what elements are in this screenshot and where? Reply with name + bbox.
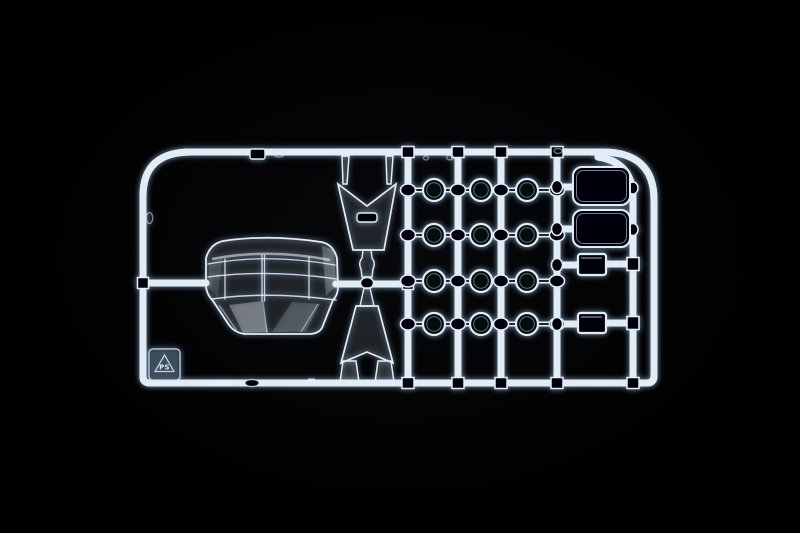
windshield-outline bbox=[206, 238, 338, 334]
material-label: PS bbox=[159, 364, 170, 372]
sprue-stem bbox=[386, 156, 393, 184]
upper-glass-panel-part bbox=[338, 156, 396, 289]
runner-bulge bbox=[451, 318, 466, 330]
sprue-stem bbox=[342, 156, 349, 184]
windshield-part bbox=[206, 238, 338, 334]
lens-grid bbox=[401, 179, 565, 335]
runner-junction-block bbox=[627, 258, 639, 271]
runner-bulge bbox=[401, 184, 416, 196]
rounded-window-pane-part bbox=[573, 167, 630, 205]
runner-bulge bbox=[361, 278, 374, 289]
runner-bulge bbox=[451, 184, 466, 196]
sprue-foot bbox=[340, 361, 359, 382]
runner-bulge bbox=[552, 259, 563, 272]
rounded-window-pane-part bbox=[573, 210, 630, 247]
small-lens-block-part bbox=[578, 313, 606, 333]
runner-bulge bbox=[552, 181, 563, 194]
runner-bulge bbox=[451, 229, 466, 241]
lower-glass-panel-part bbox=[340, 288, 394, 382]
material-tag: PS bbox=[149, 349, 180, 380]
runner-bulge bbox=[494, 318, 509, 330]
sprue-foot bbox=[375, 361, 394, 382]
runner-bulge bbox=[550, 275, 565, 287]
runner-bulge bbox=[401, 318, 416, 330]
runner-bulge bbox=[552, 223, 563, 236]
runner-bulge bbox=[494, 275, 509, 287]
runner-junction-block bbox=[627, 317, 639, 330]
runner-bulge bbox=[552, 318, 563, 331]
runner-bulge bbox=[494, 229, 509, 241]
runner-bulge bbox=[451, 275, 466, 287]
sprue-photo: PS bbox=[0, 0, 800, 533]
runner-bulge bbox=[401, 275, 416, 287]
lower-panel-outline bbox=[341, 306, 393, 363]
runner-bulge bbox=[494, 184, 509, 196]
runner-bulge bbox=[401, 229, 416, 241]
sprue-illustration: PS bbox=[0, 0, 800, 533]
small-lens-block-part bbox=[578, 254, 606, 275]
panel-slot bbox=[357, 213, 377, 222]
panel-upper-stub bbox=[360, 288, 374, 306]
panel-lower-stub bbox=[360, 250, 375, 277]
